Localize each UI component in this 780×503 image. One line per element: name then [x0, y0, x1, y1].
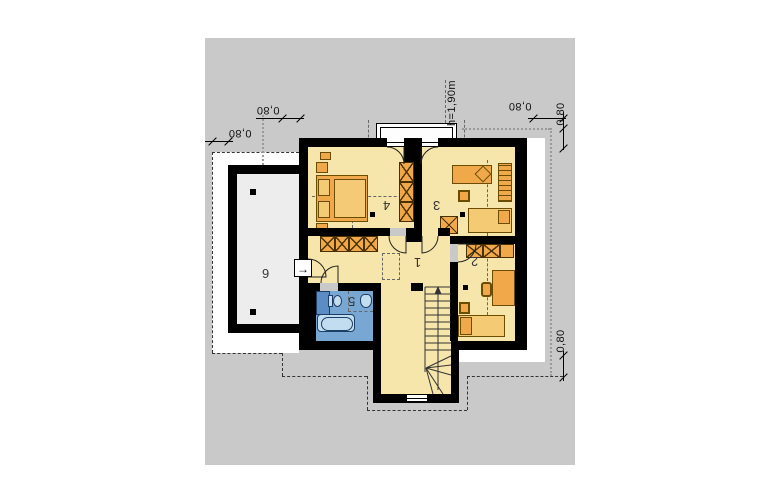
dim-text-right-upper: 0,80	[555, 99, 567, 129]
footprint-dash-s2	[467, 376, 563, 377]
annex-walls	[228, 165, 308, 333]
column-dot-bedroom2	[463, 285, 468, 290]
bed-double-blanket	[334, 179, 366, 218]
wardrobe-cell	[320, 236, 335, 252]
bath-wall-left	[308, 291, 316, 341]
contour-bath-h	[348, 311, 373, 312]
desk-bedroom2	[492, 270, 515, 306]
room-label-bedroom3: 3	[433, 199, 440, 212]
window-mullion	[407, 398, 427, 399]
bathtub-inner	[321, 317, 353, 331]
footprint-dash-west	[212, 152, 213, 353]
table-bedroom2	[459, 302, 470, 314]
room-label-bathroom: 5	[348, 295, 355, 308]
wall-top-right	[438, 138, 527, 147]
footprint-east-strip	[527, 138, 545, 350]
wardrobe-cell	[349, 236, 364, 252]
wardrobe-tall-bedroom4	[399, 162, 414, 222]
wardrobe-cell	[399, 202, 414, 222]
toilet-bowl	[333, 295, 342, 307]
wardrobe-cell	[335, 236, 350, 252]
bath-wall-top-left	[308, 283, 320, 291]
wardrobe-hall	[320, 236, 378, 252]
stairwell-window	[406, 394, 428, 402]
wardrobe-cell	[399, 162, 414, 182]
annex-post-1	[250, 189, 256, 195]
wall-top-left	[299, 138, 387, 147]
dim-text-outer-left: 0,80	[225, 127, 255, 139]
footprint-dash-s1	[282, 376, 367, 377]
bath-wall-right	[373, 283, 381, 341]
exit-arrow-icon: →	[297, 262, 309, 276]
wall-hall-north-right	[438, 228, 450, 236]
footprint-south-strip	[459, 350, 545, 362]
room-label-annex: 6	[262, 267, 269, 280]
plan-canvas: → 1 2 3	[205, 38, 575, 465]
wardrobe-cell	[364, 236, 379, 252]
room-label-bedroom4: 4	[383, 199, 390, 212]
chimney-hall	[406, 228, 422, 242]
column-dot-bedroom4	[370, 212, 375, 217]
footprint-dash-top-left	[212, 152, 299, 153]
wall-east	[515, 138, 527, 350]
chimney-top	[404, 138, 422, 162]
bed-double-pillow-1	[318, 179, 330, 196]
footprint-dash-sw2	[282, 353, 283, 376]
sink	[360, 294, 372, 308]
dim-text-inner-left: 0,80	[253, 104, 283, 116]
nightstand-1	[316, 162, 328, 173]
stairwell-dash-left	[367, 376, 368, 410]
wardrobe-cell	[483, 244, 500, 258]
wardrobe-plain-cell	[500, 244, 514, 258]
wall-hall-north-left	[308, 228, 390, 236]
partition-bedroom3-2	[458, 236, 515, 244]
floor-plan-page: → 1 2 3	[0, 0, 780, 503]
column-dot-bedroom3	[460, 212, 465, 217]
wall-shelf	[320, 152, 331, 160]
stair-pier	[411, 283, 423, 291]
pillow-bedroom2	[460, 317, 472, 335]
room-label-bedroom2: 2	[471, 255, 478, 268]
dim-text-right-lower: 0,80	[555, 326, 567, 356]
bed-double-pillow-2	[318, 201, 330, 218]
wardrobe-cell	[399, 182, 414, 202]
bookshelf-bedroom3	[498, 163, 512, 202]
height-note-text: h=1,90m	[446, 76, 458, 130]
wall-hall-bedroom2	[450, 262, 458, 341]
dim-text-top-right: 0,80	[505, 100, 535, 112]
pillow-bedroom3	[498, 210, 510, 224]
hall-skylight-dashed	[382, 253, 400, 280]
stairwell-dash-right	[467, 376, 468, 410]
room-label-hall: 1	[414, 256, 421, 269]
wall-south-left	[299, 341, 381, 350]
footprint-dash-sw1	[212, 353, 282, 354]
wall-hall-bedroom2-upper	[450, 236, 458, 244]
annex-post-2	[250, 309, 256, 315]
table-bedroom3	[458, 190, 470, 202]
dotted-extension-left	[262, 115, 264, 165]
chair-bedroom2	[481, 282, 492, 297]
corridor-stair-floor	[381, 283, 451, 394]
exit-arrow-box: →	[294, 259, 312, 277]
partition-bedroom4-3	[414, 162, 422, 228]
stairwell-dash-bottom	[367, 410, 467, 411]
roof-dotted-top	[462, 128, 550, 130]
roof-dotted-east	[550, 128, 552, 376]
wall-south-right	[451, 341, 527, 350]
